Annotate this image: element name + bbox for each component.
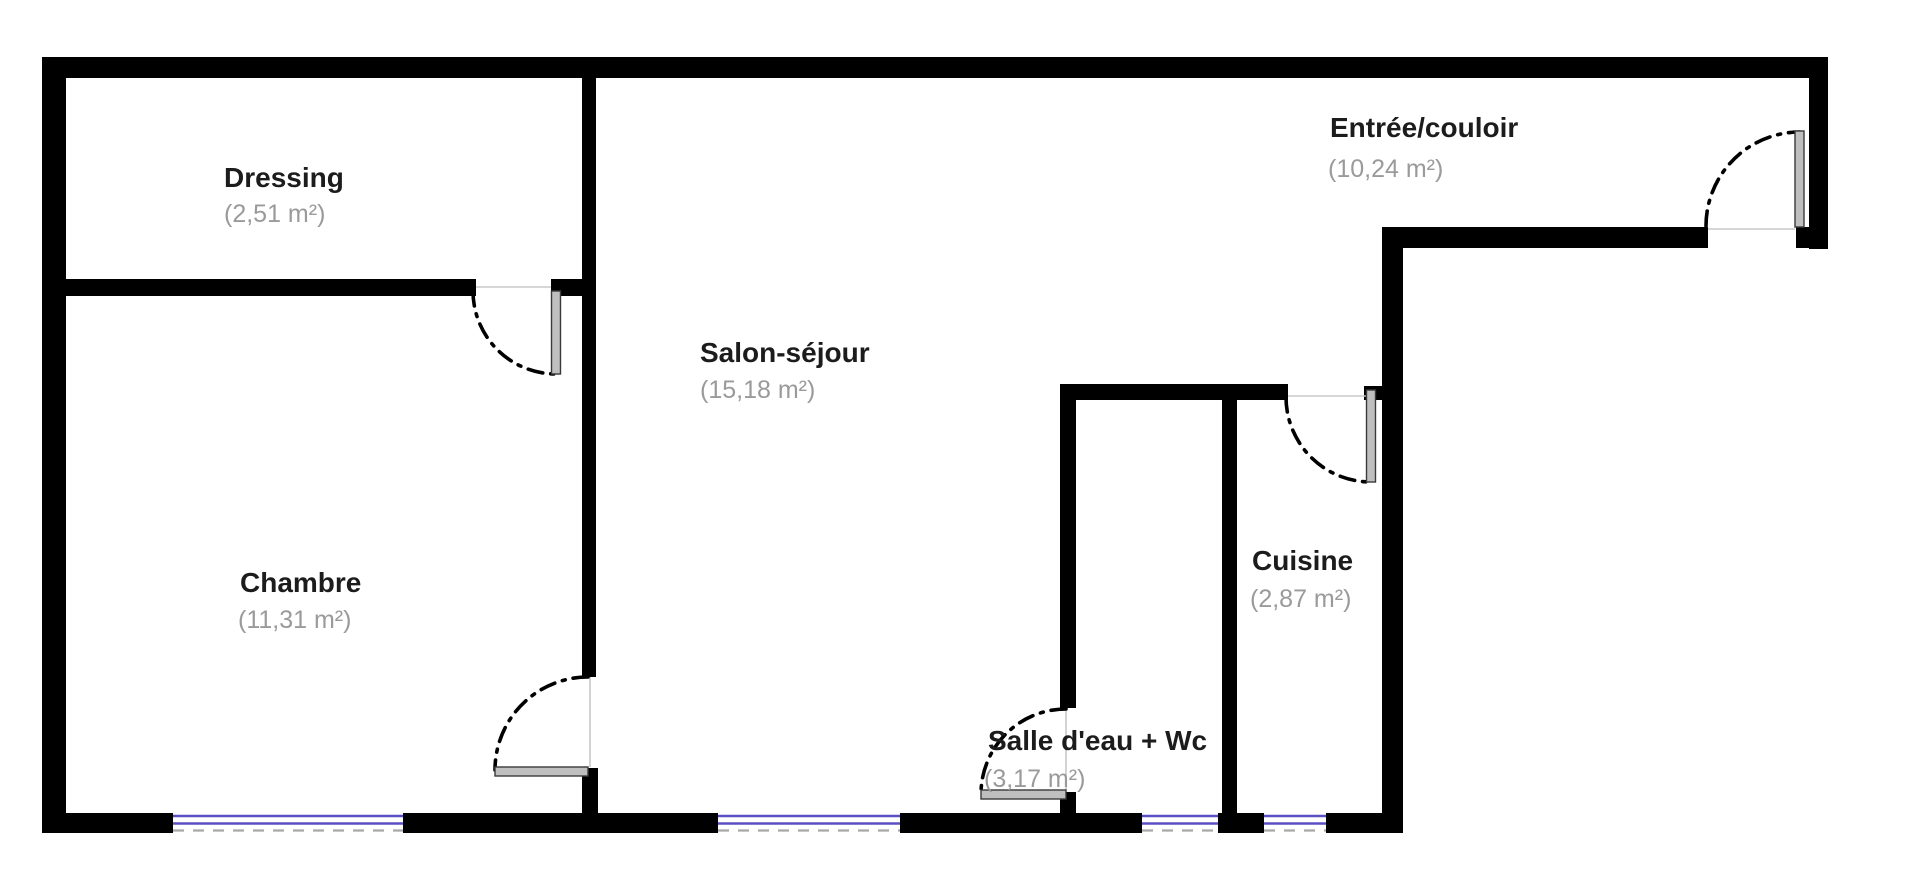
wall-exterior-right [1809, 57, 1828, 249]
floorplan-page: Dressing (2,51 m²) Chambre (11,31 m²) Sa… [0, 0, 1920, 895]
room-area: (15,18 m²) [700, 376, 815, 404]
room-name: Chambre [240, 567, 361, 598]
window-salon [718, 813, 900, 834]
door-swing-arc [1286, 397, 1371, 482]
wall-corridor-left [1382, 227, 1403, 833]
floorplan-svg: Dressing (2,51 m²) Chambre (11,31 m²) Sa… [0, 0, 1920, 895]
room-label-dressing: Dressing (2,51 m²) [224, 162, 344, 228]
door-cuisine [1286, 390, 1376, 482]
wall-bathroom-kitchen-divider [1222, 384, 1237, 813]
door-entrance [1706, 131, 1804, 229]
room-area: (2,87 m²) [1250, 585, 1351, 613]
wall-salon-divider [582, 78, 596, 677]
wall-entrance-corner [1796, 227, 1828, 248]
room-area: (10,24 m²) [1328, 155, 1443, 183]
door-swing-arc [1706, 132, 1800, 226]
wall-bathroom-left-upper [1060, 384, 1076, 708]
room-name: Entrée/couloir [1330, 112, 1518, 143]
room-area: (2,51 m²) [224, 200, 325, 228]
door-dressing [473, 287, 561, 374]
wall-corridor-bottom [1382, 227, 1708, 248]
room-area: (3,17 m²) [984, 765, 1085, 793]
room-name: Cuisine [1252, 545, 1353, 576]
room-label-chambre: Chambre (11,31 m²) [238, 567, 361, 634]
wall-exterior-top [42, 57, 1828, 78]
door-leaf [552, 291, 561, 374]
door-chambre [495, 677, 590, 776]
room-label-salon-sejour: Salon-séjour (15,18 m²) [700, 337, 870, 404]
door-leaf [495, 767, 588, 776]
room-name: Salon-séjour [700, 337, 870, 368]
window-cuisine [1264, 813, 1326, 834]
door-swing-arc [473, 291, 556, 374]
wall-exterior-left [42, 57, 66, 833]
room-labels: Dressing (2,51 m²) Chambre (11,31 m²) Sa… [224, 112, 1518, 793]
room-name: Dressing [224, 162, 344, 193]
room-label-cuisine: Cuisine (2,87 m²) [1250, 545, 1353, 613]
wall-bathroom-top [1060, 384, 1288, 400]
door-swing-arc [495, 677, 588, 770]
window-chambre [173, 813, 403, 834]
room-area: (11,31 m²) [238, 606, 351, 634]
room-label-entree-couloir: Entrée/couloir (10,24 m²) [1328, 112, 1518, 183]
room-label-salle-deau-wc: Salle d'eau + Wc (3,17 m²) [984, 725, 1207, 793]
door-leaf [1795, 131, 1804, 227]
wall-dressing-chambre [42, 279, 476, 296]
windows [173, 813, 1326, 834]
window-salle-deau [1142, 813, 1218, 834]
door-leaf [1367, 390, 1376, 482]
room-name: Salle d'eau + Wc [988, 725, 1207, 756]
